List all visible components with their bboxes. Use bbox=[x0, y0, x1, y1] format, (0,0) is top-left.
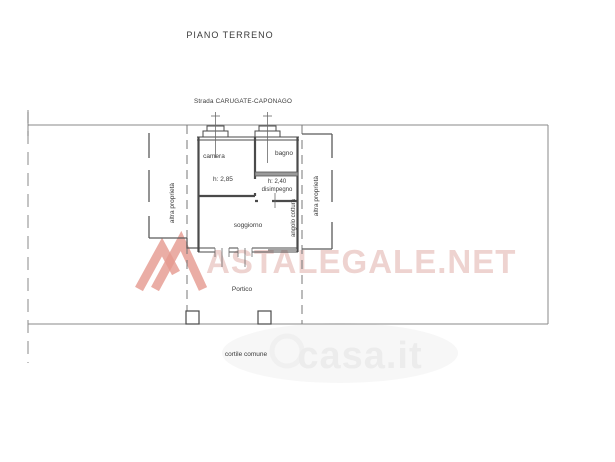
street-label: Strada CARUGATE-CAPONAGO bbox=[194, 98, 292, 105]
left-neighbor-label: altra proprietà bbox=[169, 183, 176, 223]
page-title: PIANO TERRENO bbox=[186, 30, 273, 40]
astalegale-watermark-text: ASTALEGALE.NET bbox=[206, 243, 516, 280]
disimpegno-label: disimpegno bbox=[262, 187, 293, 193]
neighbor-building-right: altra proprietà bbox=[302, 134, 332, 249]
bagno-label: bagno bbox=[275, 150, 293, 157]
floor-plan-page: casa.it ASTALEGALE.NET PIANO TERRENO Str… bbox=[0, 0, 615, 462]
property-boundaries bbox=[28, 110, 548, 363]
disimpegno-height-label: h: 2,40 bbox=[268, 179, 287, 185]
right-neighbor-label: altra proprietà bbox=[313, 176, 320, 216]
courtyard-label: cortile comune bbox=[225, 351, 268, 358]
camera-label: camera bbox=[203, 153, 225, 160]
soggiorno-label: soggiorno bbox=[234, 222, 263, 229]
casa-watermark-text: casa.it bbox=[297, 335, 422, 377]
angolo-cottura-label: angolo cottura bbox=[291, 198, 297, 237]
portico-pillar bbox=[258, 311, 271, 324]
camera-height-label: h: 2,85 bbox=[213, 176, 233, 183]
portico-pillar bbox=[186, 311, 199, 324]
portico-pillars bbox=[186, 311, 271, 324]
disimpegno-beam-band bbox=[255, 172, 298, 176]
floor-plan-canvas: casa.it ASTALEGALE.NET PIANO TERRENO Str… bbox=[0, 0, 615, 462]
portico-label: Portico bbox=[232, 286, 253, 293]
neighbor-building-left: altra proprietà bbox=[149, 133, 198, 248]
